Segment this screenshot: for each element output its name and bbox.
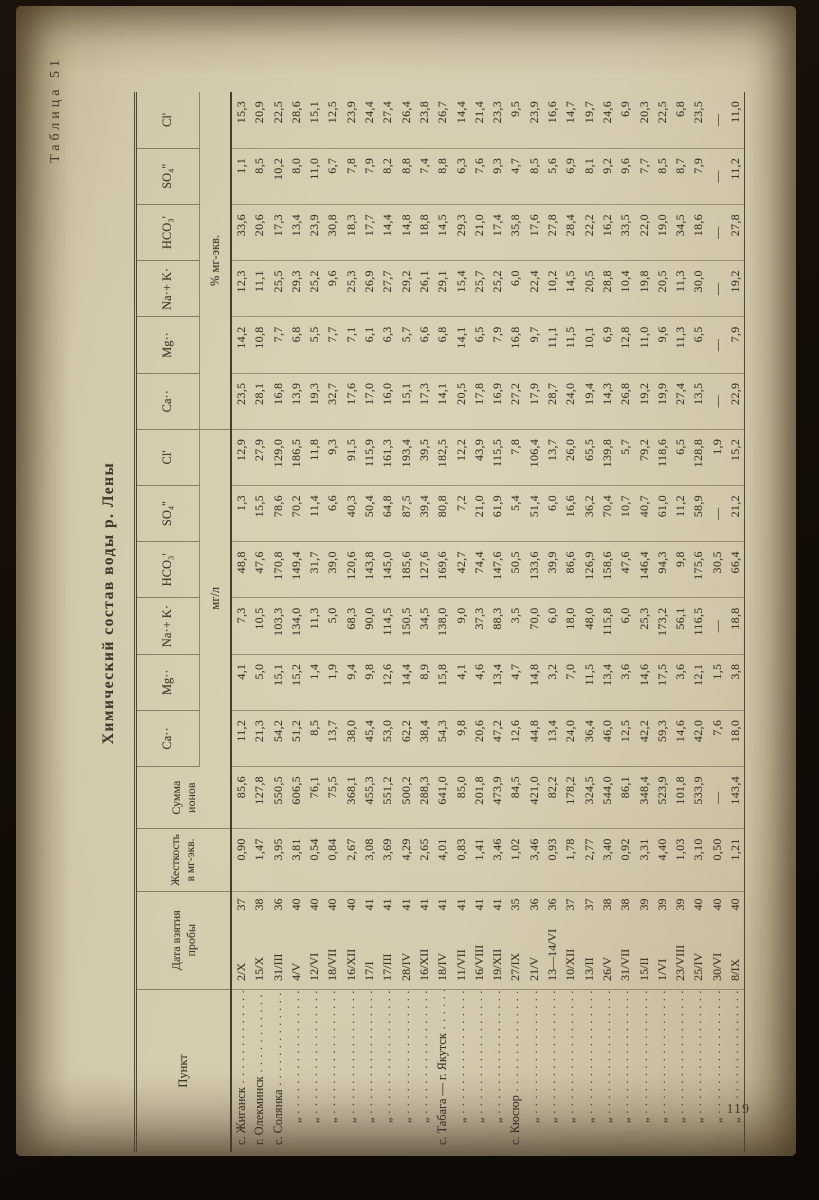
column-header-mg-pct: Mg··: [136, 317, 200, 373]
table-cell: 7,2: [452, 486, 470, 542]
table-cell: 9,3: [488, 148, 506, 204]
table-cell: 15,1: [305, 92, 323, 148]
sample-date-cell: 17/III41: [378, 891, 396, 989]
table-cell: 36,2: [580, 486, 598, 542]
table-cell: 473,9: [488, 767, 506, 829]
table-cell: 6,0: [616, 598, 634, 654]
table-cell: 20,5: [452, 373, 470, 429]
table-cell: 13,5: [689, 373, 707, 429]
table-cell: 0,92: [616, 829, 634, 891]
table-cell: 18,0: [561, 598, 579, 654]
table-cell: 11,1: [543, 317, 561, 373]
header-row-ions: Пункт Дата взятия пробы Жесткость в мг-э…: [136, 92, 200, 1152]
table-cell: 42,7: [452, 542, 470, 598]
table-cell: 26,0: [561, 429, 579, 485]
table-cell: 6,9: [561, 148, 579, 204]
table-cell: 19,9: [653, 373, 671, 429]
sample-date: 16/XII: [342, 949, 360, 981]
table-cell: 12,9: [231, 429, 250, 485]
table-cell: 22,5: [653, 92, 671, 148]
table-cell: 45,4: [360, 710, 378, 766]
table-cell: 7,1: [342, 317, 360, 373]
table-cell: 7,0: [561, 654, 579, 710]
column-header-hco3-mg: HCO₃': [136, 542, 200, 598]
table-cell: 500,2: [397, 767, 415, 829]
column-header-punkt: Пункт: [136, 989, 232, 1152]
table-cell: 126,9: [580, 542, 598, 598]
ditto-mark: „: [305, 1118, 323, 1145]
table-cell: 14,4: [452, 92, 470, 148]
table-row: с. Табага — г. Якутск. . . . . . . . . .…: [433, 92, 451, 1152]
table-cell: 2,65: [415, 829, 433, 891]
sample-year: 38: [250, 899, 268, 911]
table-cell: 11,2: [726, 148, 745, 204]
table-cell: 150,5: [397, 598, 415, 654]
table-cell: 8,8: [397, 148, 415, 204]
table-row: „. . . . . . . . . . . . . . . . . . . .…: [598, 92, 616, 1152]
table-cell: 9,5: [506, 92, 524, 148]
table-cell: 9,4: [342, 654, 360, 710]
table-cell: 5,7: [616, 429, 634, 485]
table-cell: 6,6: [323, 486, 341, 542]
table-cell: 19,2: [726, 261, 745, 317]
station-cell: „. . . . . . . . . . . . . . . . . . . .…: [580, 989, 598, 1152]
sample-date: 18/VII: [323, 949, 341, 981]
table-cell: 11,5: [561, 317, 579, 373]
table-cell: 91,5: [342, 429, 360, 485]
table-cell: 0,83: [452, 829, 470, 891]
table-cell: 533,9: [689, 767, 707, 829]
sample-year: 39: [653, 899, 671, 911]
table-cell: 17,6: [342, 373, 360, 429]
table-cell: —: [708, 92, 726, 148]
ditto-mark: „: [708, 1118, 726, 1145]
sample-date-cell: 13—14/VI36: [543, 891, 561, 989]
table-cell: 115,8: [598, 598, 616, 654]
table-cell: 82,2: [543, 767, 561, 829]
station-name: с. Табага — г. Якутск: [433, 1033, 451, 1145]
table-cell: 22,9: [726, 373, 745, 429]
ditto-mark: „: [323, 1118, 341, 1145]
station-cell: с. Солянка. . . . . . . . . . . . . . . …: [269, 989, 287, 1152]
sample-date: 30/VI: [708, 953, 726, 981]
table-cell: 10,7: [616, 486, 634, 542]
station-name: с. Солянка: [269, 1090, 287, 1145]
table-cell: 7,7: [635, 148, 653, 204]
table-cell: 61,9: [488, 486, 506, 542]
table-cell: 30,0: [689, 261, 707, 317]
ditto-mark: „: [543, 1118, 561, 1145]
table-cell: 641,0: [433, 767, 451, 829]
table-cell: 8,8: [433, 148, 451, 204]
table-cell: 24,4: [360, 92, 378, 148]
table-cell: 455,3: [360, 767, 378, 829]
table-cell: 12,5: [323, 92, 341, 148]
table-cell: 143,8: [360, 542, 378, 598]
table-cell: 37,3: [470, 598, 488, 654]
table-cell: 8,1: [580, 148, 598, 204]
table-cell: 17,3: [269, 205, 287, 261]
leader-dots: . . . . . . . . . . . . . . . . . . . . …: [287, 990, 305, 1118]
table-cell: —: [708, 598, 726, 654]
table-cell: 12,6: [378, 654, 396, 710]
table-row: с. Кюсюр. . . . . . . . . . . . . . . . …: [506, 92, 524, 1152]
table-cell: 51,2: [287, 710, 305, 766]
table-cell: 523,9: [653, 767, 671, 829]
table-cell: 85,0: [452, 767, 470, 829]
table-cell: 8,2: [378, 148, 396, 204]
ditto-mark: „: [397, 1118, 415, 1145]
table-cell: —: [708, 767, 726, 829]
table-cell: 6,8: [287, 317, 305, 373]
table-cell: 9,0: [452, 598, 470, 654]
leader-dots: . . . . . . . . . . . . . . . . . . . . …: [323, 990, 341, 1118]
table-cell: 70,4: [598, 486, 616, 542]
table-cell: 21,4: [470, 92, 488, 148]
column-header-nak-pct: Na·+ K·: [136, 261, 200, 317]
ditto-mark: „: [287, 1118, 305, 1145]
table-cell: 17,3: [415, 373, 433, 429]
sample-year: 38: [616, 899, 634, 911]
table-cell: 161,3: [378, 429, 396, 485]
table-cell: 4,1: [452, 654, 470, 710]
table-cell: 22,0: [635, 205, 653, 261]
table-cell: 28,7: [543, 373, 561, 429]
table-cell: 22,2: [580, 205, 598, 261]
table-cell: 87,5: [397, 486, 415, 542]
table-cell: 0,93: [543, 829, 561, 891]
table-cell: 11,3: [671, 261, 689, 317]
table-cell: 8,0: [287, 148, 305, 204]
station-cell: с. Табага — г. Якутск. . . . . . . . . .…: [433, 989, 451, 1152]
table-cell: 39,9: [543, 542, 561, 598]
station-cell: „. . . . . . . . . . . . . . . . . . . .…: [470, 989, 488, 1152]
column-header-nak-mg: Na·+ K·: [136, 598, 200, 654]
leader-dots: . . . . . . . . . . . . . . . . . . . . …: [433, 990, 451, 1033]
column-header-date: Дата взятия пробы: [136, 891, 232, 989]
table-cell: 50,5: [506, 542, 524, 598]
table-cell: 101,8: [671, 767, 689, 829]
table-cell: 9,3: [323, 429, 341, 485]
table-cell: 56,1: [671, 598, 689, 654]
sample-year: 39: [635, 899, 653, 911]
table-cell: 5,0: [250, 654, 268, 710]
table-cell: 5,6: [543, 148, 561, 204]
sample-year: 41: [488, 899, 506, 911]
table-cell: 9,8: [452, 710, 470, 766]
table-cell: 10,1: [580, 317, 598, 373]
table-row: „. . . . . . . . . . . . . . . . . . . .…: [580, 92, 598, 1152]
sample-date: 10/XII: [561, 949, 579, 981]
table-cell: 11,2: [671, 486, 689, 542]
table-cell: 11,3: [305, 598, 323, 654]
table-cell: 39,5: [415, 429, 433, 485]
column-header-hco3-pct: HCO₃': [136, 205, 200, 261]
table-cell: 127,6: [415, 542, 433, 598]
table-cell: 21,3: [250, 710, 268, 766]
sample-year: 41: [415, 899, 433, 911]
sample-date-cell: 2/X37: [231, 891, 250, 989]
table-cell: 38,0: [342, 710, 360, 766]
table-cell: 11,4: [305, 486, 323, 542]
table-cell: 127,8: [250, 767, 268, 829]
sample-date: 15/X: [250, 957, 268, 981]
table-cell: 193,4: [397, 429, 415, 485]
page-number: 119: [727, 1102, 750, 1118]
table-cell: 28,8: [598, 261, 616, 317]
sample-date: 26/V: [598, 957, 616, 981]
table-cell: 26,9: [360, 261, 378, 317]
table-cell: 27,8: [726, 205, 745, 261]
table-cell: 14,3: [598, 373, 616, 429]
table-cell: 6,7: [323, 148, 341, 204]
sample-date: 4/V: [287, 963, 305, 981]
table-cell: 149,4: [287, 542, 305, 598]
table-row: „. . . . . . . . . . . . . . . . . . . .…: [397, 92, 415, 1152]
table-cell: 76,1: [305, 767, 323, 829]
table-cell: 18,6: [689, 205, 707, 261]
column-header-cl-pct: Cl': [136, 92, 200, 148]
table-cell: 5,0: [323, 598, 341, 654]
leader-dots: . . . . . . . . . . . . . . . . . . . . …: [488, 990, 506, 1118]
title-bar: Таблица 51 Химический состав воды р. Лен…: [42, 50, 134, 1156]
table-cell: 3,6: [616, 654, 634, 710]
table-cell: 13,7: [543, 429, 561, 485]
table-cell: 24,0: [561, 373, 579, 429]
sample-date-cell: 23/VIII39: [671, 891, 689, 989]
leader-dots: . . . . . . . . . . . . . . . . . . . . …: [342, 990, 360, 1118]
sample-date: 15/II: [635, 958, 653, 981]
table-cell: 3,69: [378, 829, 396, 891]
table-cell: 1,9: [323, 654, 341, 710]
station-cell: „. . . . . . . . . . . . . . . . . . . .…: [598, 989, 616, 1152]
table-cell: 147,6: [488, 542, 506, 598]
sample-date: 2/X: [232, 963, 250, 981]
table-cell: 24,0: [561, 710, 579, 766]
table-cell: 29,1: [433, 261, 451, 317]
station-name: с. Жиганск: [232, 1087, 250, 1145]
leader-dots: . . . . . . . . . . . . . . . . . . . . …: [726, 990, 744, 1118]
table-cell: 64,8: [378, 486, 396, 542]
table-cell: 84,5: [506, 767, 524, 829]
table-cell: 3,95: [269, 829, 287, 891]
table-cell: 17,9: [525, 373, 543, 429]
table-cell: 19,3: [305, 373, 323, 429]
sample-date-cell: 26/V38: [598, 891, 616, 989]
table-cell: 12,2: [452, 429, 470, 485]
table-cell: 68,3: [342, 598, 360, 654]
station-cell: „. . . . . . . . . . . . . . . . . . . .…: [452, 989, 470, 1152]
table-cell: 15,2: [726, 429, 745, 485]
table-cell: 23,9: [342, 92, 360, 148]
table-cell: 128,8: [689, 429, 707, 485]
table-row: „. . . . . . . . . . . . . . . . . . . .…: [342, 92, 360, 1152]
table-cell: 53,0: [378, 710, 396, 766]
sample-year: 35: [506, 899, 524, 911]
table-cell: 86,1: [616, 767, 634, 829]
station-cell: „. . . . . . . . . . . . . . . . . . . .…: [305, 989, 323, 1152]
leader-dots: . . . . . . . . . . . . . . . . . . . . …: [506, 990, 524, 1095]
table-cell: 106,4: [525, 429, 543, 485]
table-row: с. Жиганск. . . . . . . . . . . . . . . …: [231, 92, 250, 1152]
ditto-mark: „: [378, 1118, 396, 1145]
table-cell: 23,5: [689, 92, 707, 148]
table-row: „. . . . . . . . . . . . . . . . . . . .…: [708, 92, 726, 1152]
book-page: Таблица 51 Химический состав воды р. Лен…: [16, 6, 796, 1156]
table-cell: 24,6: [598, 92, 616, 148]
station-cell: с. Кюсюр. . . . . . . . . . . . . . . . …: [506, 989, 524, 1152]
table-cell: 0,90: [231, 829, 250, 891]
station-cell: „. . . . . . . . . . . . . . . . . . . .…: [360, 989, 378, 1152]
table-cell: 27,2: [506, 373, 524, 429]
table-cell: 17,4: [488, 205, 506, 261]
table-cell: —: [708, 148, 726, 204]
table-cell: 11,0: [635, 317, 653, 373]
leader-dots: . . . . . . . . . . . . . . . . . . . . …: [250, 990, 268, 1076]
table-cell: 3,8: [726, 654, 745, 710]
table-row: „. . . . . . . . . . . . . . . . . . . .…: [653, 92, 671, 1152]
table-cell: 3,6: [671, 654, 689, 710]
table-cell: 139,8: [598, 429, 616, 485]
column-header-so4-pct: SO₄'': [136, 148, 200, 204]
table-cell: 7,6: [470, 148, 488, 204]
table-cell: 28,6: [287, 92, 305, 148]
table-cell: 6,5: [689, 317, 707, 373]
sample-year: 40: [305, 899, 323, 911]
table-cell: 48,0: [580, 598, 598, 654]
leader-dots: . . . . . . . . . . . . . . . . . . . . …: [616, 990, 634, 1118]
table-cell: 178,2: [561, 767, 579, 829]
table-row: „. . . . . . . . . . . . . . . . . . . .…: [452, 92, 470, 1152]
table-cell: 10,2: [269, 148, 287, 204]
table-cell: 116,5: [689, 598, 707, 654]
sample-date-cell: 25/IV40: [689, 891, 707, 989]
table-cell: 54,3: [433, 710, 451, 766]
sample-date-cell: 16/XII40: [342, 891, 360, 989]
sample-year: 40: [726, 899, 744, 911]
table-cell: 29,3: [452, 205, 470, 261]
sample-date: 16/VIII: [470, 945, 488, 981]
table-cell: 4,01: [433, 829, 451, 891]
table-cell: 30,5: [708, 542, 726, 598]
table-cell: 26,8: [616, 373, 634, 429]
sample-date-cell: 18/VII40: [323, 891, 341, 989]
station-cell: „. . . . . . . . . . . . . . . . . . . .…: [616, 989, 634, 1152]
sample-year: 39: [671, 899, 689, 911]
column-header-cl-mg: Cl': [136, 429, 200, 485]
table-cell: 0,54: [305, 829, 323, 891]
table-cell: 0,50: [708, 829, 726, 891]
table-cell: 6,3: [378, 317, 396, 373]
sample-date-cell: 15/X38: [250, 891, 268, 989]
table-cell: 26,1: [415, 261, 433, 317]
table-cell: 20,5: [653, 261, 671, 317]
table-cell: 16,9: [488, 373, 506, 429]
table-cell: 27,7: [378, 261, 396, 317]
table-cell: 7,7: [269, 317, 287, 373]
sample-date: 8/IX: [726, 959, 744, 981]
leader-dots: . . . . . . . . . . . . . . . . . . . . …: [580, 990, 598, 1118]
table-cell: 7,8: [342, 148, 360, 204]
table-cell: 22,5: [269, 92, 287, 148]
table-cell: 6,8: [433, 317, 451, 373]
table-row: „. . . . . . . . . . . . . . . . . . . .…: [323, 92, 341, 1152]
sample-date-cell: 28/IV41: [397, 891, 415, 989]
sample-date: 23/VIII: [671, 945, 689, 981]
table-cell: 21,2: [726, 486, 745, 542]
table-cell: 145,0: [378, 542, 396, 598]
table-cell: 12,8: [616, 317, 634, 373]
table-cell: —: [708, 486, 726, 542]
table-cell: 17,7: [360, 205, 378, 261]
table-cell: 22,4: [525, 261, 543, 317]
table-cell: 133,6: [525, 542, 543, 598]
table-cell: 19,7: [580, 92, 598, 148]
table-cell: 27,8: [543, 205, 561, 261]
table-cell: 46,0: [598, 710, 616, 766]
table-cell: 16,8: [506, 317, 524, 373]
table-cell: 6,8: [671, 92, 689, 148]
table-cell: 26,7: [433, 92, 451, 148]
station-cell: „. . . . . . . . . . . . . . . . . . . .…: [543, 989, 561, 1152]
table-cell: 27,4: [671, 373, 689, 429]
leader-dots: . . . . . . . . . . . . . . . . . . . . …: [415, 990, 433, 1118]
table-cell: 143,4: [726, 767, 745, 829]
table-cell: 23,5: [231, 373, 250, 429]
table-cell: 9,6: [616, 148, 634, 204]
table-cell: 11,0: [726, 92, 745, 148]
table-cell: 34,5: [671, 205, 689, 261]
table-cell: 42,2: [635, 710, 653, 766]
station-cell: с. Жиганск. . . . . . . . . . . . . . . …: [231, 989, 250, 1152]
ditto-mark: „: [415, 1118, 433, 1145]
station-cell: „. . . . . . . . . . . . . . . . . . . .…: [342, 989, 360, 1152]
table-cell: 14,5: [433, 205, 451, 261]
table-cell: 7,6: [708, 710, 726, 766]
table-cell: 90,0: [360, 598, 378, 654]
sample-date: 19/XII: [488, 949, 506, 981]
table-cell: 8,5: [250, 148, 268, 204]
table-cell: 21,0: [470, 486, 488, 542]
sample-date: 31/VII: [616, 949, 634, 981]
column-header-ca-pct: Ca··: [136, 373, 200, 429]
ditto-mark: „: [342, 1118, 360, 1145]
table-cell: 33,6: [231, 205, 250, 261]
table-body: с. Жиганск. . . . . . . . . . . . . . . …: [231, 92, 745, 1152]
table-cell: 15,4: [452, 261, 470, 317]
column-header-hardness: Жесткость в мг-экв.: [136, 829, 232, 891]
table-cell: 23,3: [488, 92, 506, 148]
station-cell: „. . . . . . . . . . . . . . . . . . . .…: [323, 989, 341, 1152]
table-cell: 62,2: [397, 710, 415, 766]
table-cell: 18,8: [415, 205, 433, 261]
table-cell: 42,0: [689, 710, 707, 766]
table-cell: 29,2: [397, 261, 415, 317]
table-cell: —: [708, 205, 726, 261]
table-cell: 14,4: [397, 654, 415, 710]
table-cell: 86,6: [561, 542, 579, 598]
table-cell: 11,5: [580, 654, 598, 710]
table-cell: 14,8: [397, 205, 415, 261]
table-cell: 14,2: [231, 317, 250, 373]
table-cell: 146,4: [635, 542, 653, 598]
table-cell: 6,1: [360, 317, 378, 373]
table-cell: 13,4: [598, 654, 616, 710]
table-cell: 11,8: [305, 429, 323, 485]
table-cell: 20,3: [635, 92, 653, 148]
table-cell: 13,4: [543, 710, 561, 766]
table-cell: 8,5: [525, 148, 543, 204]
